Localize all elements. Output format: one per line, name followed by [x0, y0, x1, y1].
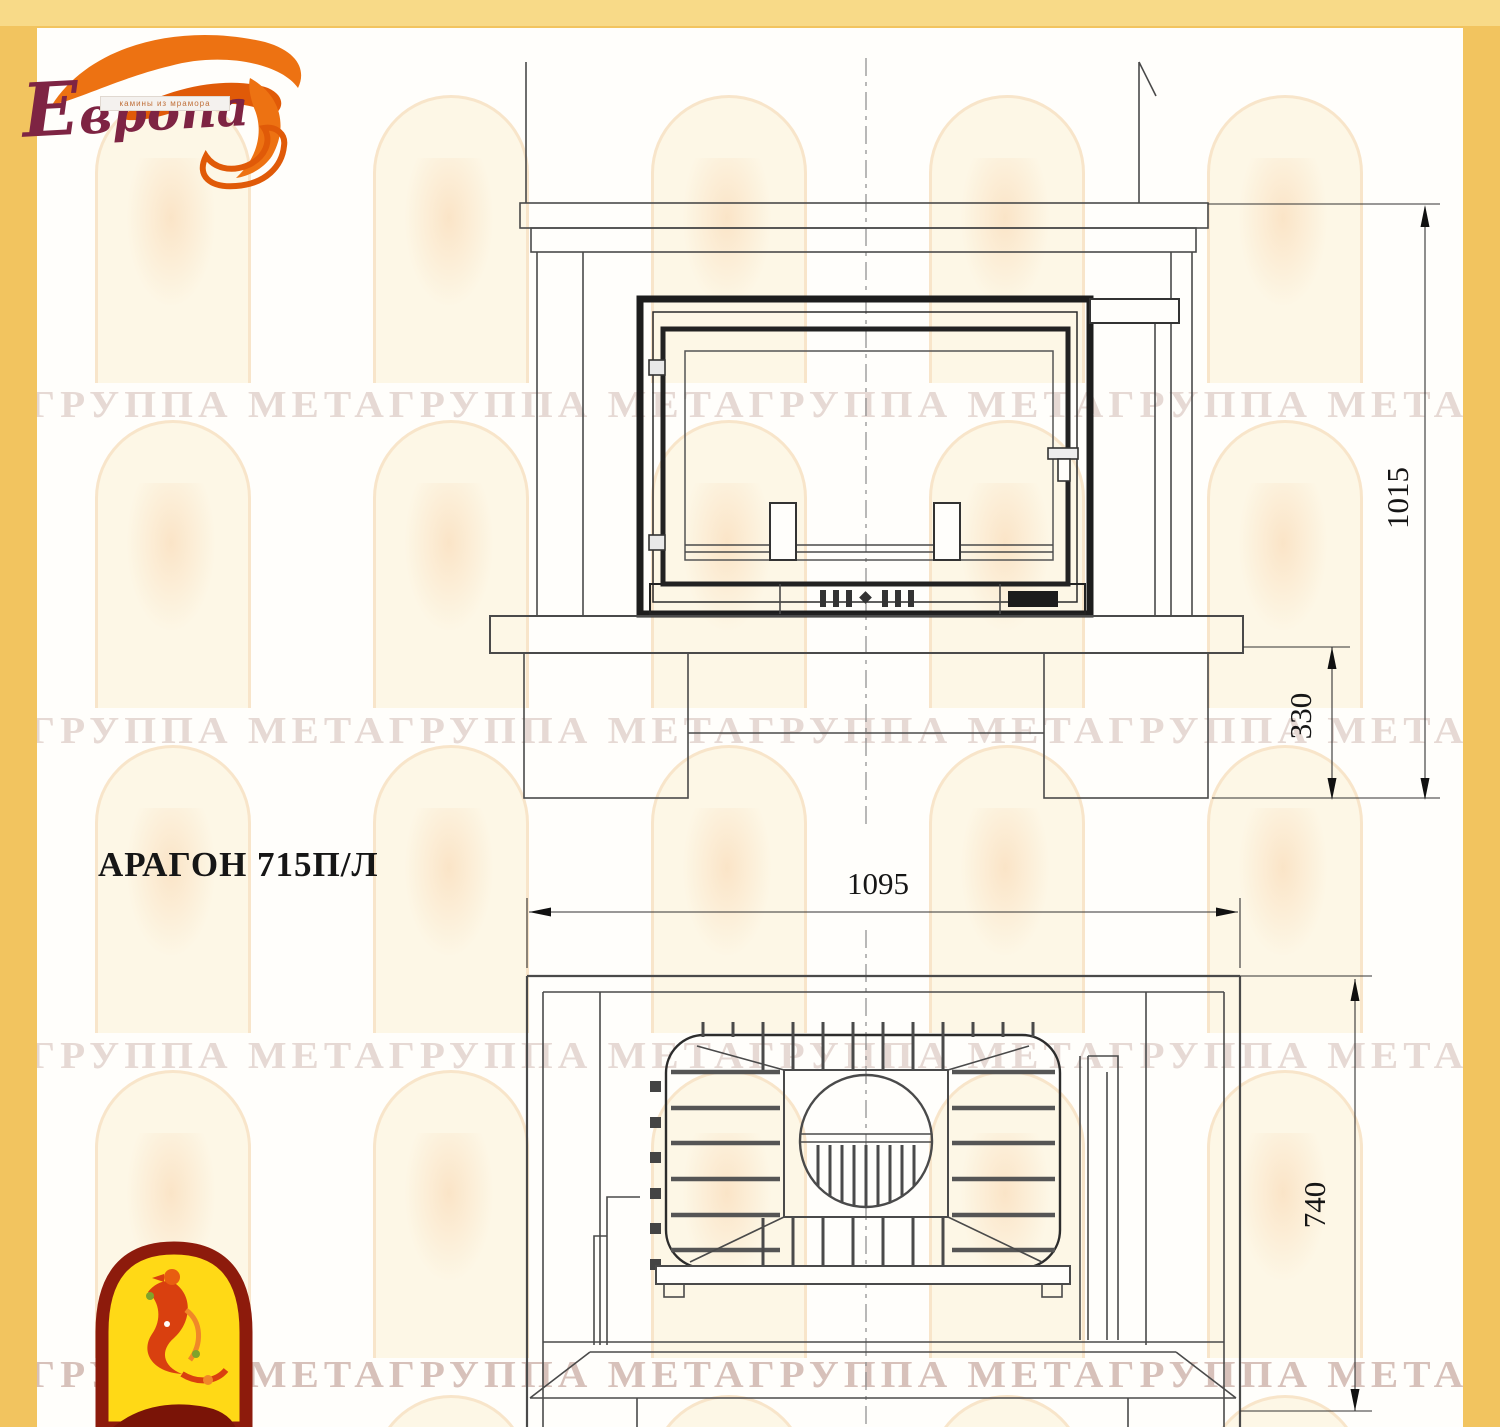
dim-overall-depth-label: 740	[1297, 1182, 1333, 1229]
page-root: ГРУППА МЕТАГРУППА МЕТАГРУППА МЕТАГРУППА …	[0, 0, 1500, 1427]
andiron-left	[770, 503, 796, 560]
plan-left-step	[594, 1197, 640, 1345]
insert-front-plate	[656, 1266, 1070, 1284]
chimney-lines	[526, 62, 1156, 203]
firebox-outer-frame	[640, 299, 1090, 614]
door-handle-grip	[1058, 459, 1070, 481]
dim-line-width	[527, 898, 1240, 968]
model-title: АРАГОН 715П/Л	[98, 845, 379, 885]
plan-liner-walls	[600, 992, 1146, 1345]
plan-right-shield	[1080, 1056, 1118, 1340]
log-retainer-rails	[685, 545, 1053, 552]
dim-base-height-label: 330	[1283, 693, 1319, 740]
lintel-return	[1090, 299, 1179, 323]
dim-overall-width-label: 1095	[847, 866, 909, 902]
insert-foot-right	[1042, 1284, 1062, 1297]
firebird-emblem-icon	[88, 1232, 260, 1427]
bottom-fins	[763, 1218, 943, 1266]
plan-view	[527, 976, 1240, 1427]
firebox-frame-step	[653, 312, 1077, 602]
dim-overall-height-label: 1015	[1380, 467, 1416, 529]
vent-slots	[820, 590, 914, 607]
base-pedestal-right	[1044, 653, 1208, 798]
technical-drawing	[0, 0, 1500, 1427]
base-pedestal-left	[524, 653, 688, 798]
door-hinge-bottom	[649, 535, 665, 550]
door-hinge-top	[649, 360, 665, 375]
top-diagonal-braces	[697, 1046, 1029, 1070]
hearth-apron	[530, 1352, 1236, 1427]
door-glass	[685, 351, 1053, 560]
mantel-shelf-lower	[531, 228, 1196, 252]
side-fin-bars	[671, 1072, 1055, 1250]
left-mount-studs	[650, 1081, 661, 1270]
andiron-right	[934, 503, 960, 560]
top-inner-fins	[763, 1037, 943, 1070]
vent-strip-joints	[780, 584, 1000, 614]
brand-badge	[1008, 591, 1058, 607]
mantel-shelf-top	[520, 203, 1208, 228]
insert-foot-left	[664, 1284, 684, 1297]
door-handle	[1048, 448, 1078, 459]
